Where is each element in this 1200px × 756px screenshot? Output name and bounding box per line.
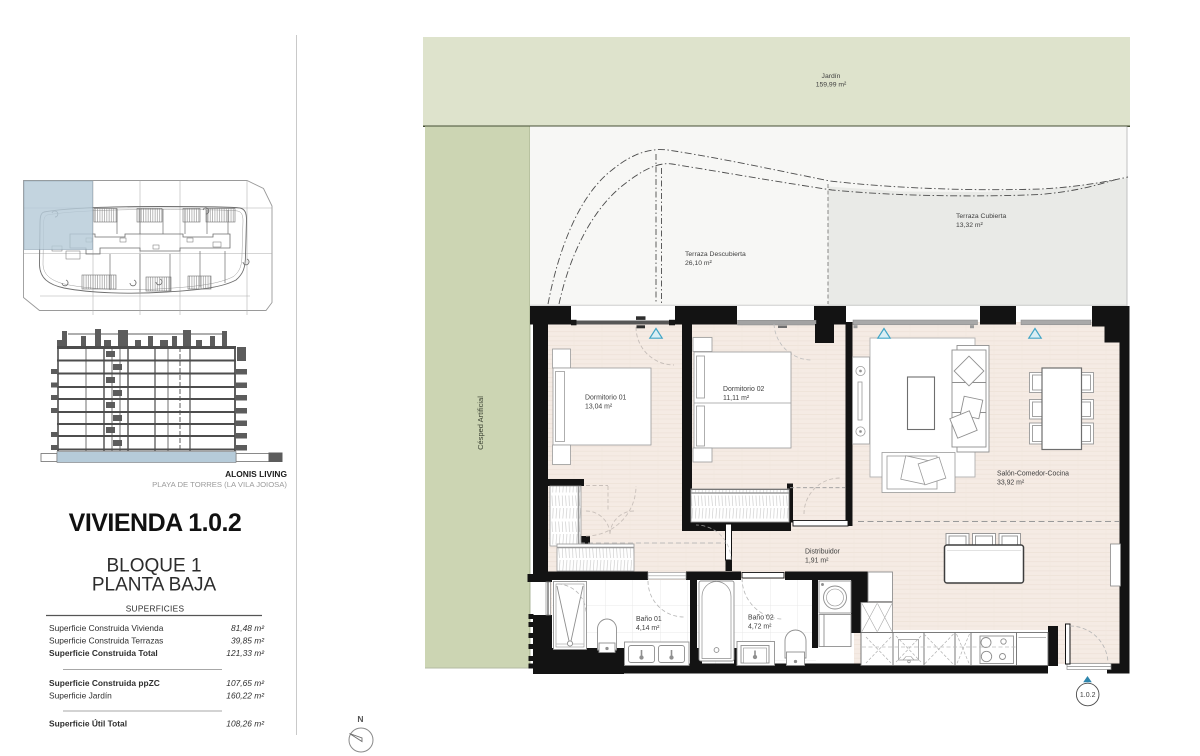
svg-text:26,10 m²: 26,10 m² xyxy=(685,260,713,267)
svg-text:Superficie Útil Total: Superficie Útil Total xyxy=(49,718,127,729)
svg-text:BLOQUE 1: BLOQUE 1 xyxy=(106,556,201,577)
svg-text:108,26 m²: 108,26 m² xyxy=(226,719,265,729)
svg-text:Baño 01: Baño 01 xyxy=(636,616,662,623)
svg-text:4,14 m²: 4,14 m² xyxy=(636,625,660,632)
svg-text:Césped Artificial: Césped Artificial xyxy=(476,396,485,450)
svg-text:81,48 m²: 81,48 m² xyxy=(231,623,265,633)
svg-text:Salón-Comedor-Cocina: Salón-Comedor-Cocina xyxy=(997,471,1069,478)
svg-text:SUPERFICIES: SUPERFICIES xyxy=(126,604,185,614)
svg-text:Jardín: Jardín xyxy=(822,73,841,80)
svg-text:107,65 m²: 107,65 m² xyxy=(226,678,265,688)
svg-text:ALONIS LIVING: ALONIS LIVING xyxy=(225,469,287,479)
svg-text:Distribuidor: Distribuidor xyxy=(805,549,841,556)
svg-text:Dormitorio 01: Dormitorio 01 xyxy=(585,395,627,402)
svg-text:Terraza Cubierta: Terraza Cubierta xyxy=(956,213,1006,220)
svg-text:PLAYA DE TORRES (LA VILA JOIOS: PLAYA DE TORRES (LA VILA JOIOSA) xyxy=(152,480,287,489)
svg-text:Superficie Construida Total: Superficie Construida Total xyxy=(49,648,158,658)
svg-text:13,04 m²: 13,04 m² xyxy=(585,404,613,411)
svg-text:4,72 m²: 4,72 m² xyxy=(748,624,772,631)
svg-text:1.0.2: 1.0.2 xyxy=(1080,692,1096,699)
svg-text:PLANTA BAJA: PLANTA BAJA xyxy=(92,575,217,596)
svg-text:11,11 m²: 11,11 m² xyxy=(723,395,750,402)
svg-text:N: N xyxy=(357,714,363,724)
svg-text:39,85 m²: 39,85 m² xyxy=(231,636,265,646)
svg-text:160,22 m²: 160,22 m² xyxy=(226,691,265,701)
svg-text:Terraza Descubierta: Terraza Descubierta xyxy=(685,251,746,258)
svg-text:159,99 m²: 159,99 m² xyxy=(816,82,847,89)
svg-text:121,33 m²: 121,33 m² xyxy=(226,648,265,658)
svg-text:13,32 m²: 13,32 m² xyxy=(956,222,984,229)
svg-text:Dormitorio 02: Dormitorio 02 xyxy=(723,386,765,393)
svg-text:1,91 m²: 1,91 m² xyxy=(805,558,829,565)
svg-text:VIVIENDA 1.0.2: VIVIENDA 1.0.2 xyxy=(69,509,242,537)
svg-text:Baño 02: Baño 02 xyxy=(748,615,774,622)
svg-text:Superficie Construida ppZC: Superficie Construida ppZC xyxy=(49,678,160,688)
svg-text:Superficie Jardín: Superficie Jardín xyxy=(49,691,112,701)
svg-text:33,92 m²: 33,92 m² xyxy=(997,480,1025,487)
svg-text:Superficie Construida Terrazas: Superficie Construida Terrazas xyxy=(49,636,163,646)
svg-text:Superficie Construida Vivienda: Superficie Construida Vivienda xyxy=(49,623,164,633)
